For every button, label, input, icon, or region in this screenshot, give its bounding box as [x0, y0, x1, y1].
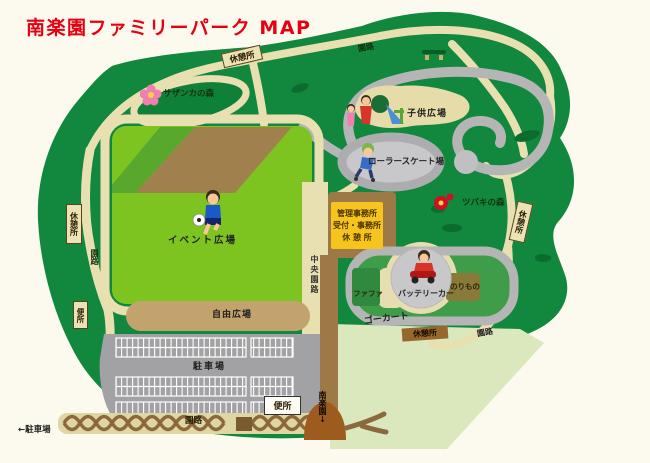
parking-direction-label: ←駐車場 — [18, 426, 51, 435]
tsubaki-forest-label: ツバキの森 — [462, 199, 505, 208]
office-sign: 管理事務所 受付・事務所 休 憩 所 — [331, 202, 383, 249]
rest-area-sign-left: 休憩所 — [66, 204, 82, 244]
park-map: 南楽園ファミリーパーク MAP 休憩所 園路 サザンカの森 子供広場 ローラース… — [0, 0, 650, 463]
central-path-label: 中央園路 — [310, 255, 318, 295]
rides-label: のりもの — [450, 283, 480, 291]
toilet-sign-left: 便所 — [73, 301, 88, 329]
picnic-bench-icon — [420, 47, 448, 61]
kids-playground-icon — [346, 90, 412, 134]
free-plaza-label: 自由広場 — [212, 311, 252, 320]
office-line-3: 休 憩 所 — [342, 234, 372, 242]
office-line-1: 管理事務所 — [337, 210, 377, 218]
fafa-label: ファファ — [353, 290, 383, 298]
path-label-left: 園路 — [90, 249, 98, 265]
nanrakuen-direction-label: 南楽園↓ — [318, 391, 326, 424]
map-title: 南楽園ファミリーパーク MAP — [26, 13, 311, 40]
event-plaza-label: イベント広場 — [168, 236, 237, 246]
roller-rink-label: ローラースケート場 — [368, 158, 444, 167]
soccer-boy-icon — [190, 188, 230, 238]
path-label-bottom: 園路 — [185, 417, 202, 426]
office-line-2: 受付・事務所 — [333, 222, 381, 230]
sazanka-flower-icon — [140, 84, 162, 106]
toilet-sign-bottom: 便所 — [264, 396, 301, 415]
battery-car-rider-icon — [404, 248, 440, 286]
kids-plaza-label: 子供広場 — [407, 110, 447, 119]
parking-label: 駐車場 — [193, 363, 226, 372]
tsubaki-flower-icon — [430, 192, 456, 214]
sazanka-forest-label: サザンカの森 — [163, 90, 214, 99]
fafa-patch — [352, 268, 380, 306]
battery-car-label: バッテリーカー — [398, 290, 454, 298]
